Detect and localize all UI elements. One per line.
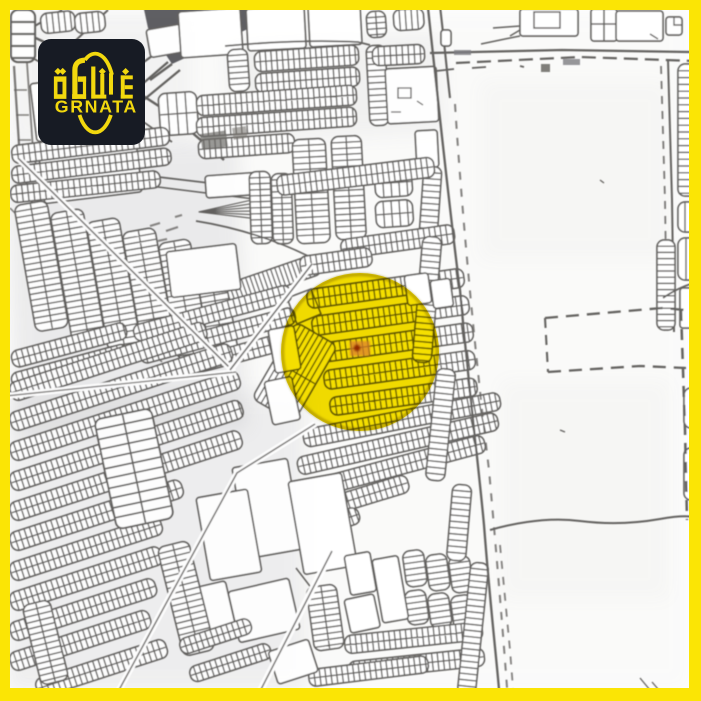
svg-text:GRNATA: GRNATA — [55, 97, 138, 117]
